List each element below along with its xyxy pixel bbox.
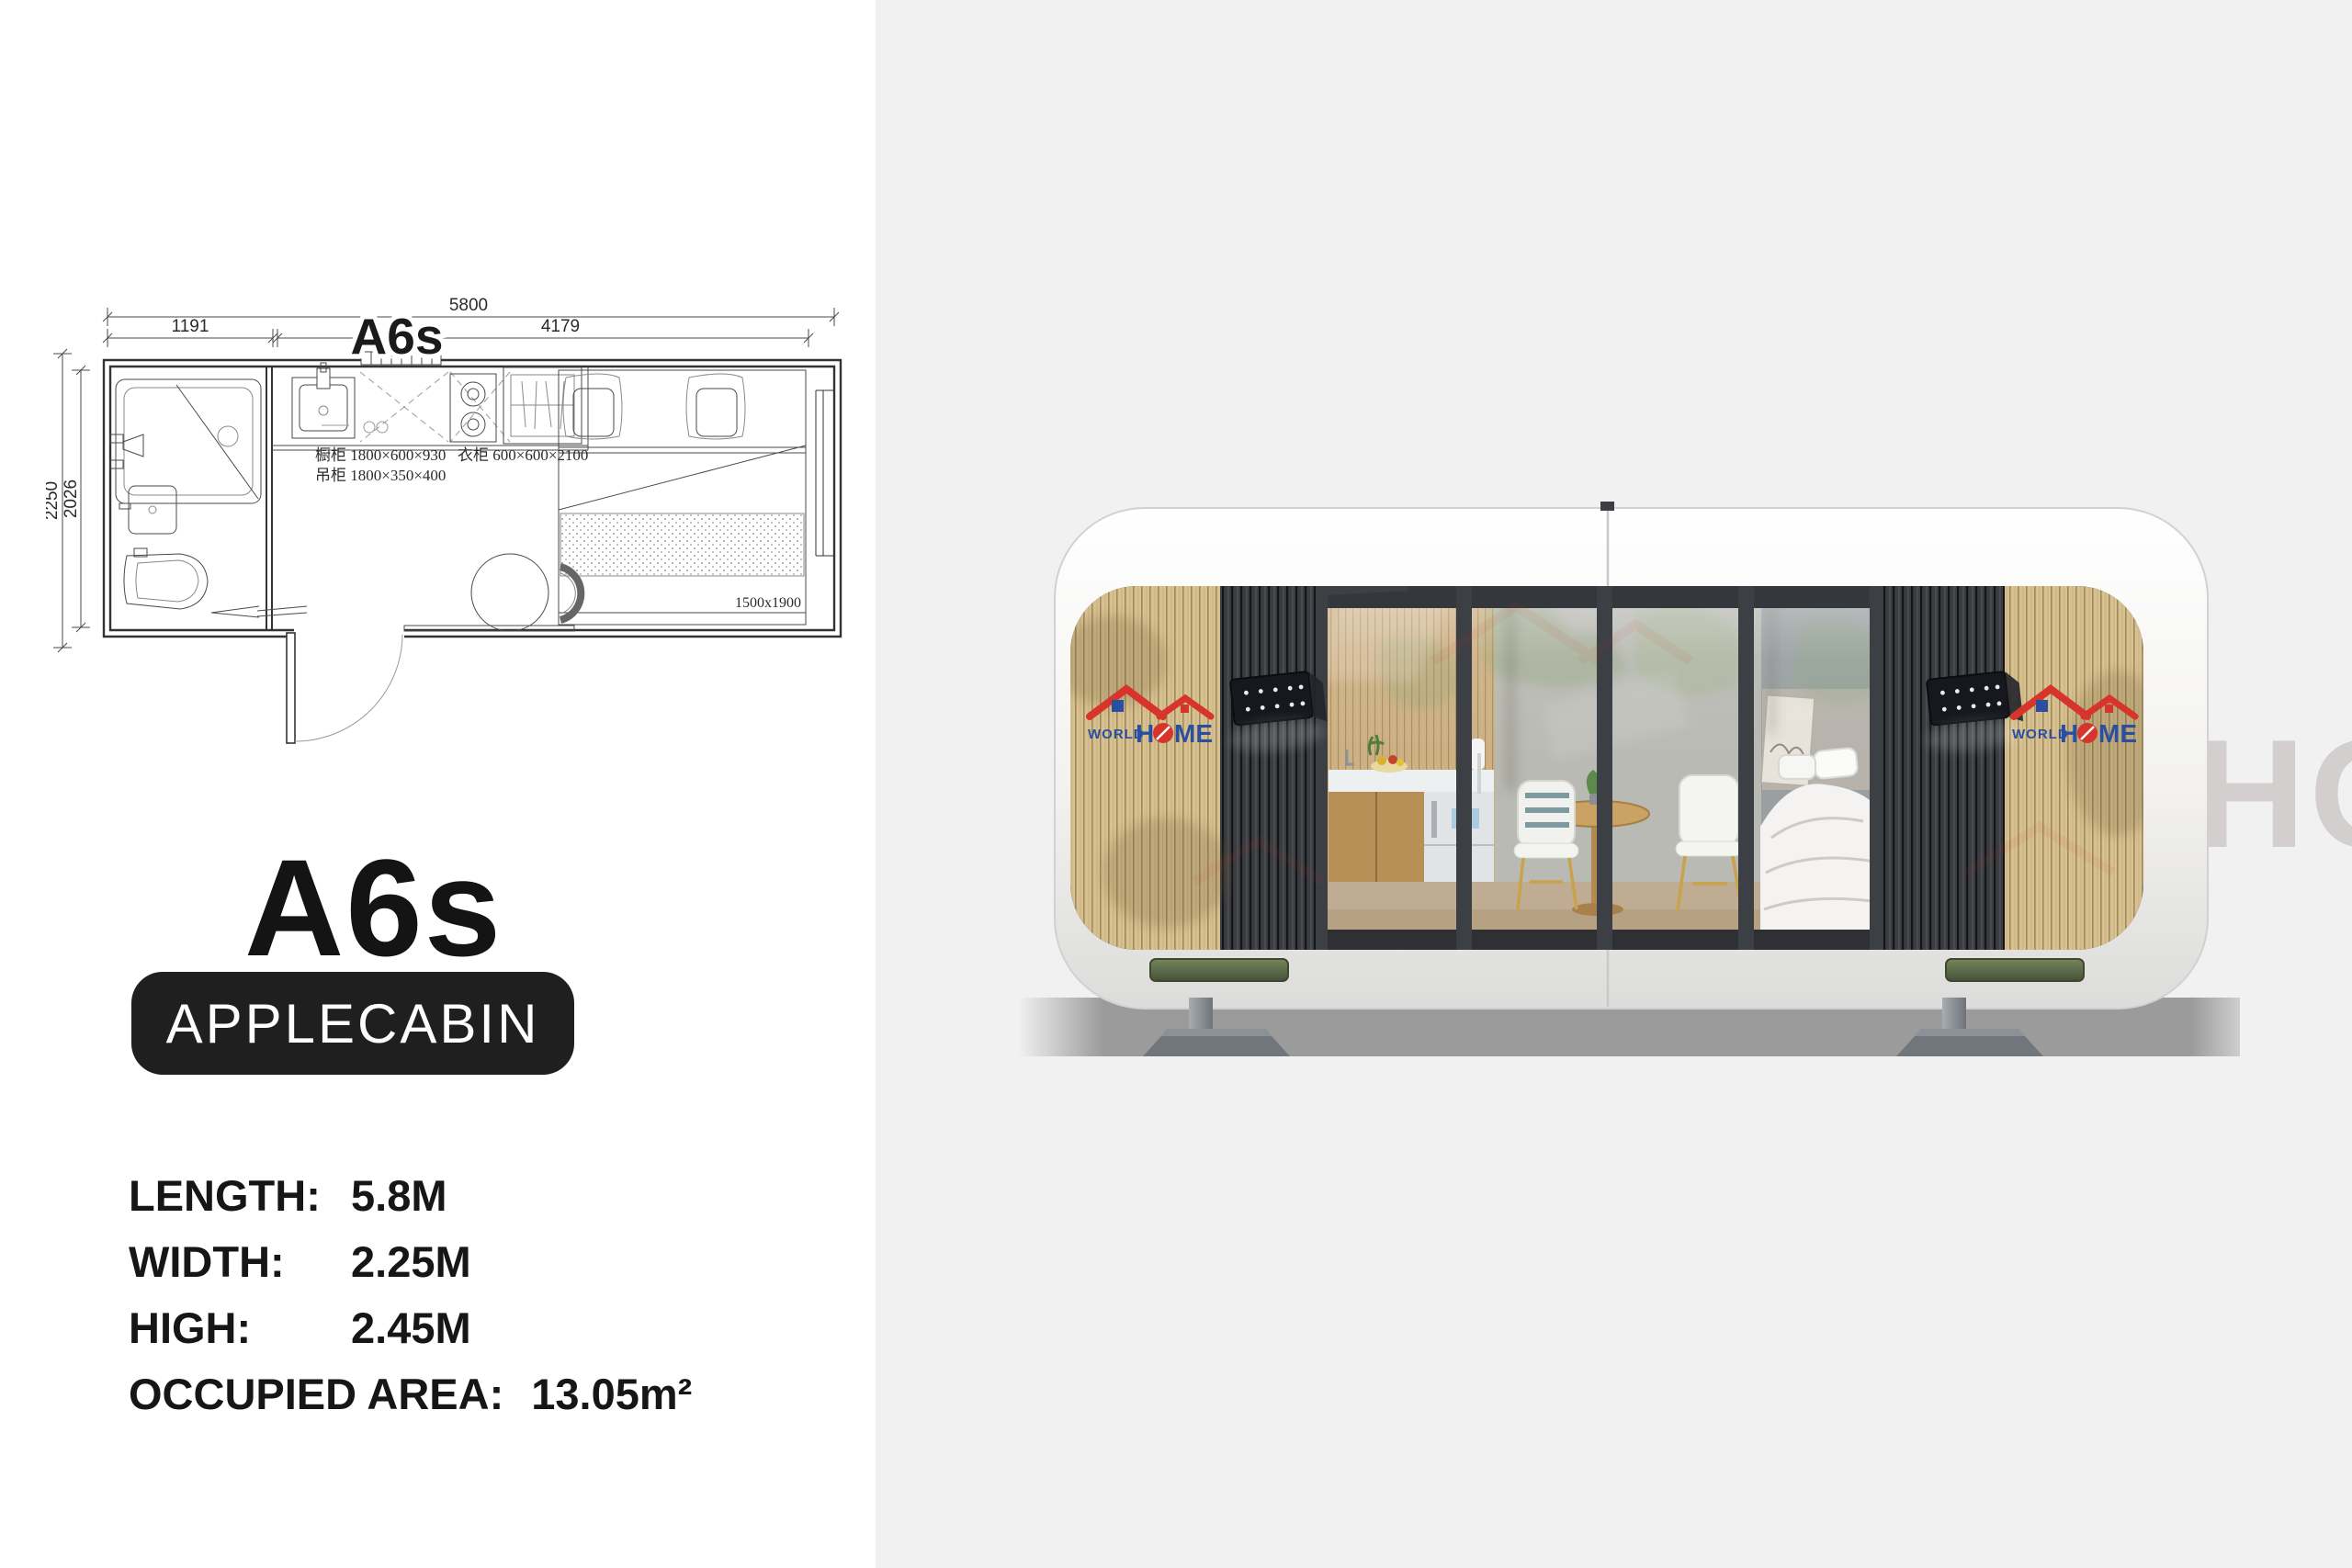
bathroom-partition [266, 367, 272, 630]
logo-letters-me: ME [1174, 719, 1213, 748]
logo-letter-h: H [1136, 719, 1154, 748]
skid-right [1946, 959, 2084, 981]
spec-value: 13.05m² [531, 1370, 692, 1418]
label-hanging-cabinet: 吊柜 1800×350×400 [315, 467, 446, 484]
dim-label-1191: 1191 [172, 317, 209, 336]
spec-colon: : [237, 1303, 252, 1352]
outer-walls [104, 360, 841, 637]
spec-value: 2.45M [351, 1303, 471, 1352]
glass-doors [1311, 559, 1882, 950]
dim-label-2250: 2250 [46, 481, 62, 520]
label-bed-size: 1500x1900 [735, 595, 801, 611]
door-handle [1477, 753, 1481, 794]
spec-colon: : [490, 1370, 504, 1418]
stove [450, 374, 496, 442]
plan-model-label: A6s [351, 308, 444, 365]
page-title-model: A6s [244, 829, 503, 987]
skid-left [1150, 959, 1288, 981]
series-badge: APPLECABIN [131, 972, 574, 1075]
spec-value: 5.8M [351, 1171, 447, 1220]
spec-row-length: LENGTH:5.8M [129, 1163, 692, 1229]
shower [110, 379, 261, 503]
page: HOME [0, 0, 2352, 1568]
spec-value: 2.25M [351, 1237, 471, 1286]
cabin-render: WORLD H ME WORLD H ME [992, 478, 2278, 1121]
spec-colon: : [306, 1171, 321, 1220]
bed [559, 370, 806, 625]
dim-label-2026: 2026 [62, 479, 81, 518]
dark-slat-left [1220, 586, 1316, 950]
logo-letter-h: H [2060, 719, 2078, 748]
cabinet-marks [322, 372, 510, 442]
spec-colon: : [270, 1237, 285, 1286]
spec-row-high: HIGH:2.45M [129, 1295, 692, 1361]
kitchen-sink [292, 363, 355, 438]
series-badge-label: APPLECABIN [166, 992, 540, 1055]
cabin-recess: WORLD H ME WORLD H ME [1057, 559, 2168, 950]
label-kitchen-cabinet: 橱柜 1800×600×930 [315, 446, 446, 464]
dim-label-5800: 5800 [449, 296, 488, 315]
toilet [124, 548, 208, 609]
dim-label-4179: 4179 [541, 317, 580, 336]
spec-row-width: WIDTH:2.25M [129, 1229, 692, 1295]
spec-row-area: OCCUPIED AREA:13.05m² [129, 1361, 692, 1427]
spec-label: HIGH [129, 1303, 237, 1352]
bathroom-door [211, 606, 259, 617]
label-wardrobe: 衣柜 600×600×2100 [458, 446, 588, 464]
spec-label: OCCUPIED AREA [129, 1370, 490, 1418]
spec-list: LENGTH:5.8M WIDTH:2.25M HIGH:2.45M OCCUP… [129, 1163, 692, 1427]
logo-letters-me: ME [2098, 719, 2137, 748]
spec-label: WIDTH [129, 1237, 270, 1286]
dining-table [471, 554, 581, 631]
spec-label: LENGTH [129, 1171, 306, 1220]
window-right [816, 390, 834, 556]
floor-plan-drawing: 5800 1191 4179 2250 2026 A6s 橱柜 1800×600… [46, 296, 841, 743]
wardrobe [503, 367, 582, 444]
dark-slat-right [1882, 586, 2005, 950]
floor-plan: 5800 1191 4179 2250 2026 A6s 橱柜 1800×600… [46, 289, 882, 813]
